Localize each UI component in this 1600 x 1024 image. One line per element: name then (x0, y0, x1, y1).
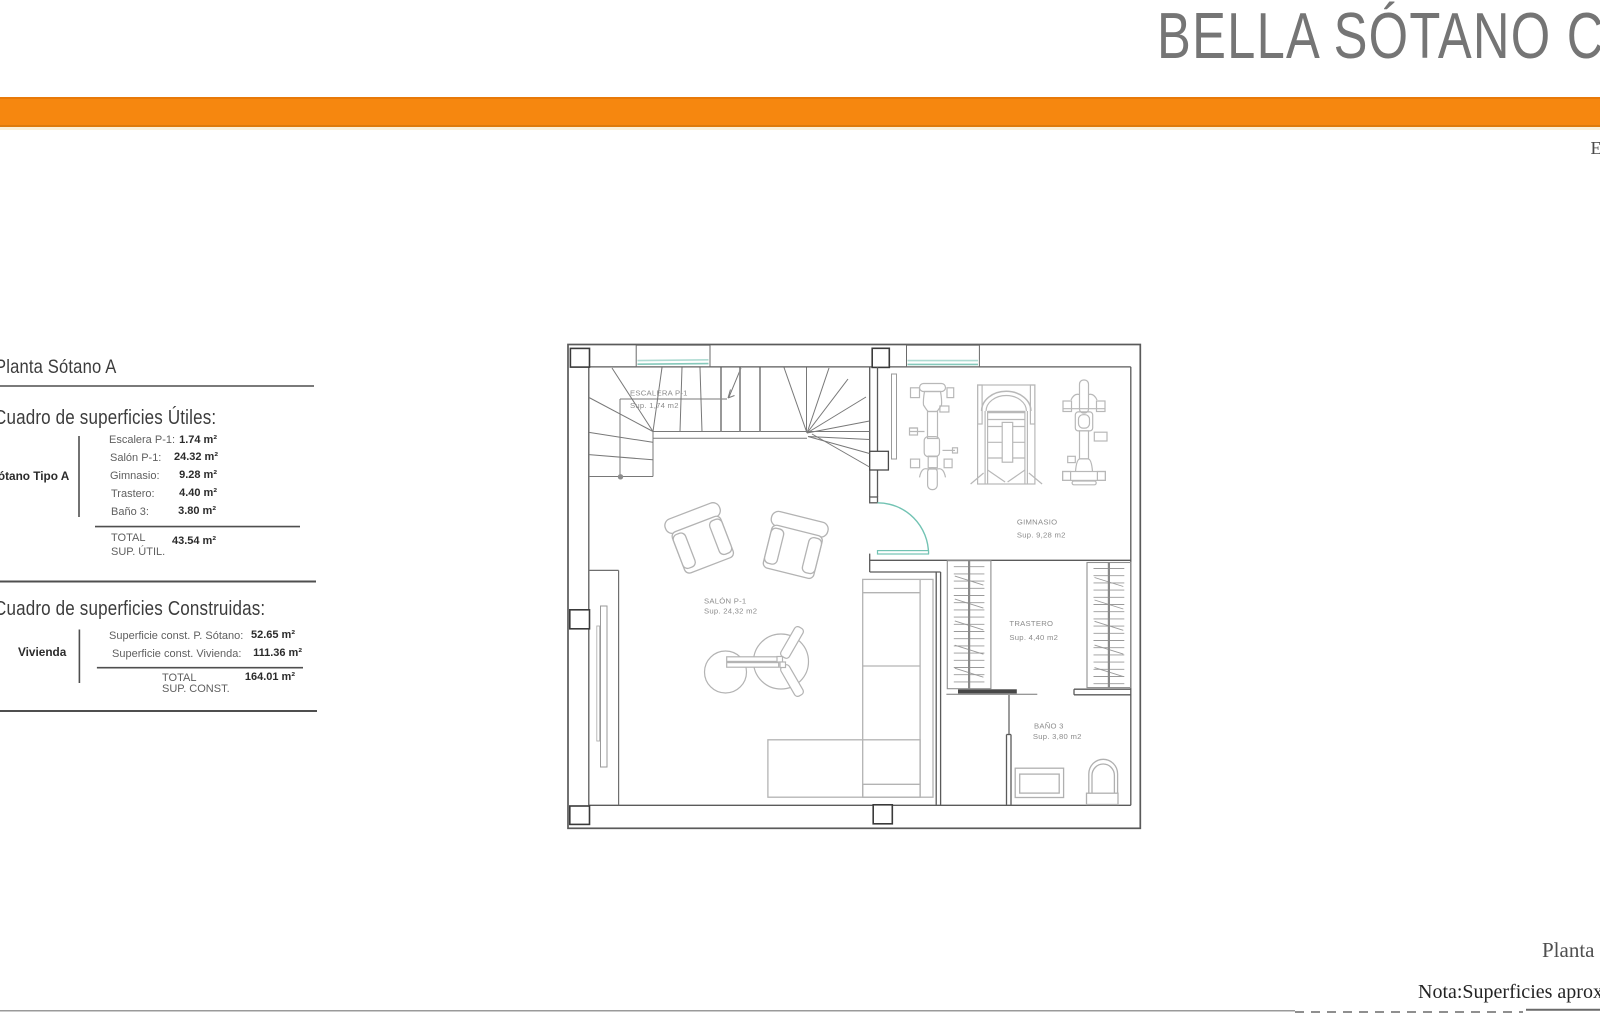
svg-text:Sup. 1,74 m2: Sup. 1,74 m2 (630, 401, 679, 410)
svg-text:Sup. 3,80 m2: Sup. 3,80 m2 (1033, 732, 1082, 741)
svg-text:ESCALERA P-1: ESCALERA P-1 (630, 388, 688, 397)
svg-text:BAÑO 3: BAÑO 3 (1034, 722, 1064, 731)
svg-text:SALÓN P-1: SALÓN P-1 (704, 596, 746, 605)
svg-text:Sup. 24,32 m2: Sup. 24,32 m2 (704, 607, 757, 616)
svg-text:GIMNASIO: GIMNASIO (1017, 517, 1057, 526)
svg-text:Sup. 4,40 m2: Sup. 4,40 m2 (1009, 633, 1058, 642)
svg-text:Sup. 9,28 m2: Sup. 9,28 m2 (1017, 530, 1066, 539)
svg-text:TRASTERO: TRASTERO (1009, 619, 1053, 628)
